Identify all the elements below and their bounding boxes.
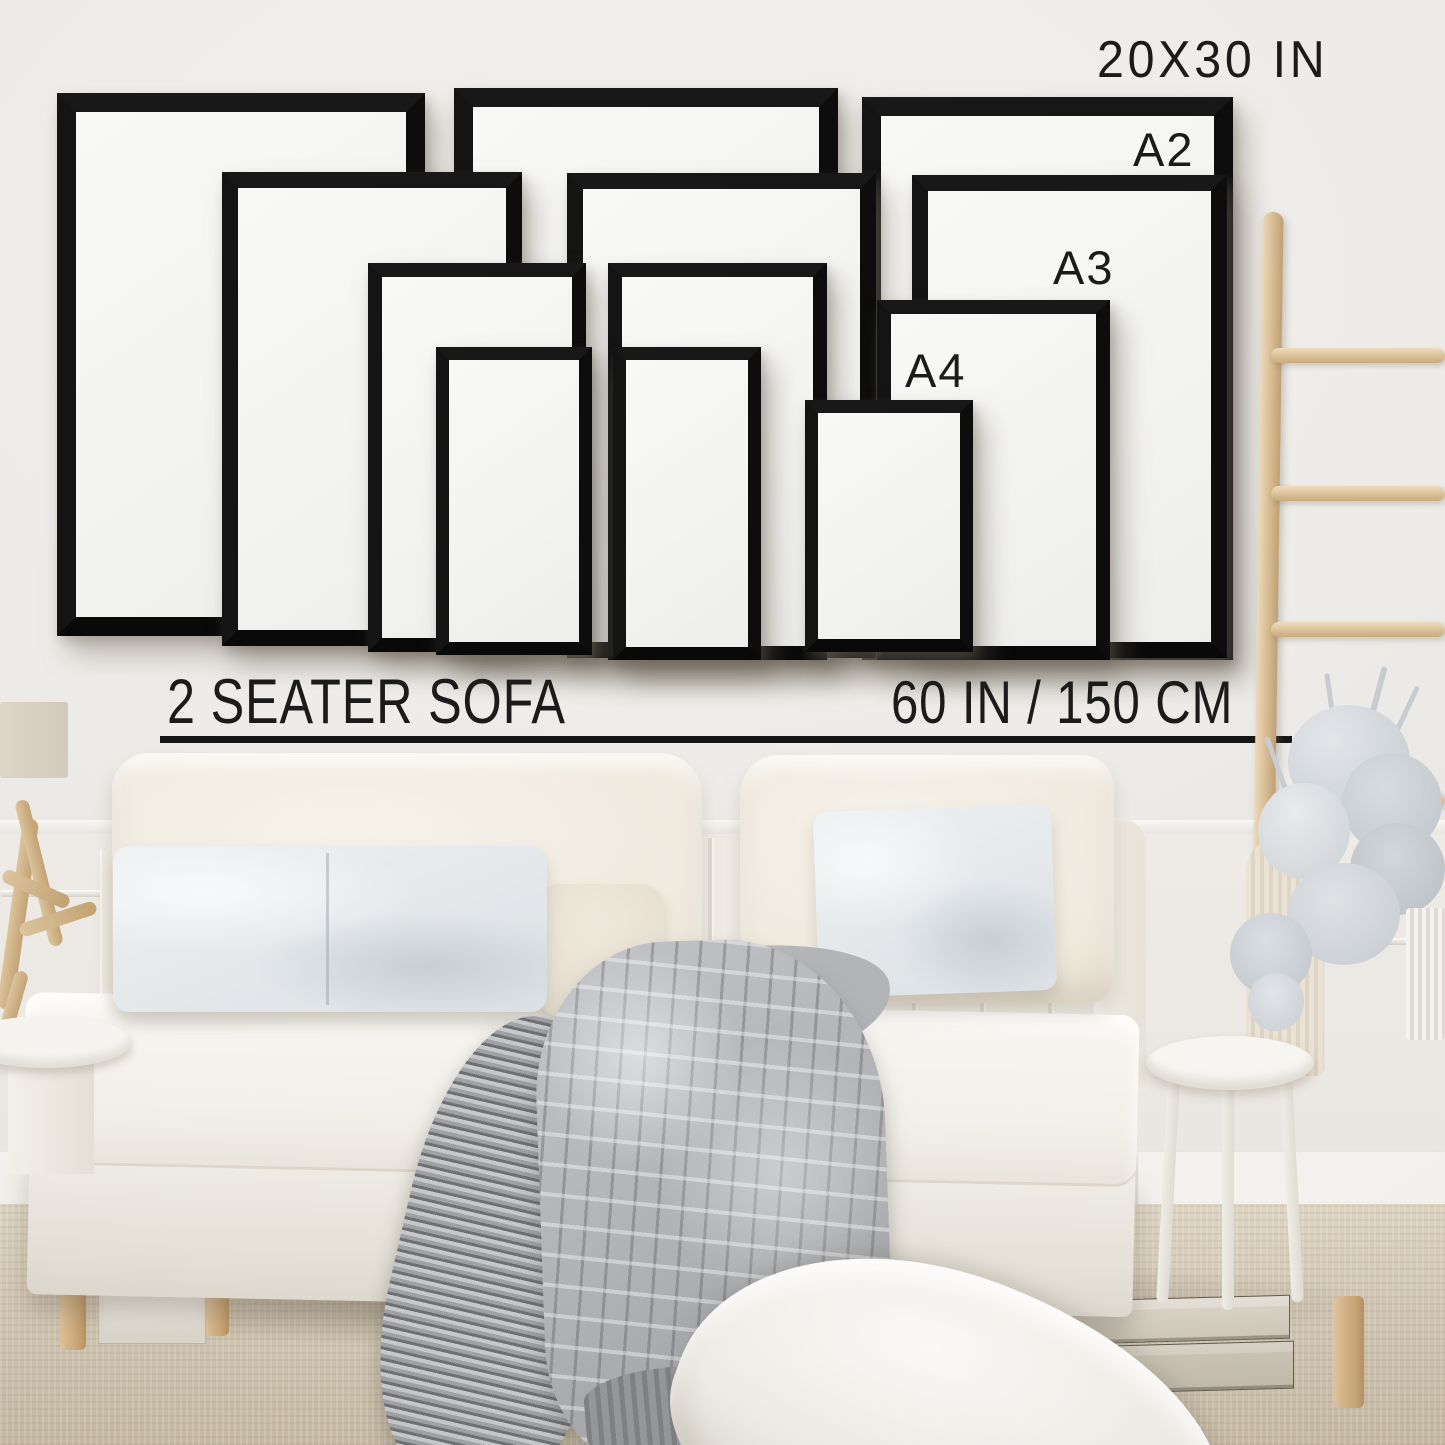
label-sofa-width: 60 IN / 150 CM — [891, 673, 1233, 733]
picture-frame-middle-a4 — [613, 347, 761, 660]
dried-flower-bloom — [1248, 973, 1304, 1031]
driftwood-sculpture — [0, 790, 100, 1040]
label-a2: A2 — [1133, 126, 1195, 173]
sofa-width-dimension-line — [160, 736, 1292, 743]
right-side-table-leg — [1222, 1084, 1234, 1310]
sofa-leg — [1334, 1296, 1364, 1408]
size-guide-image: 20X30 IN A2 A3 A4 2 SEATER SOFA 60 IN / … — [0, 0, 1445, 1445]
frames-layer — [0, 0, 1445, 760]
picture-frame-right-a4 — [805, 400, 973, 652]
ladder-rung — [1271, 622, 1445, 637]
label-20x30: 20X30 IN — [1097, 34, 1328, 86]
right-side-table-top — [1146, 1036, 1314, 1090]
ladder-rung — [1271, 486, 1445, 501]
label-sofa: 2 SEATER SOFA — [167, 671, 566, 734]
ladder-rung — [1271, 348, 1445, 363]
ribbed-planter-vase — [1406, 908, 1445, 1040]
label-a3: A3 — [1053, 244, 1115, 291]
picture-frame-left-a4 — [436, 347, 592, 655]
lamp-shade — [0, 702, 68, 778]
label-a4: A4 — [905, 347, 967, 394]
gray-lumbar-pillow — [113, 846, 547, 1012]
left-side-table-pedestal — [8, 1052, 94, 1174]
